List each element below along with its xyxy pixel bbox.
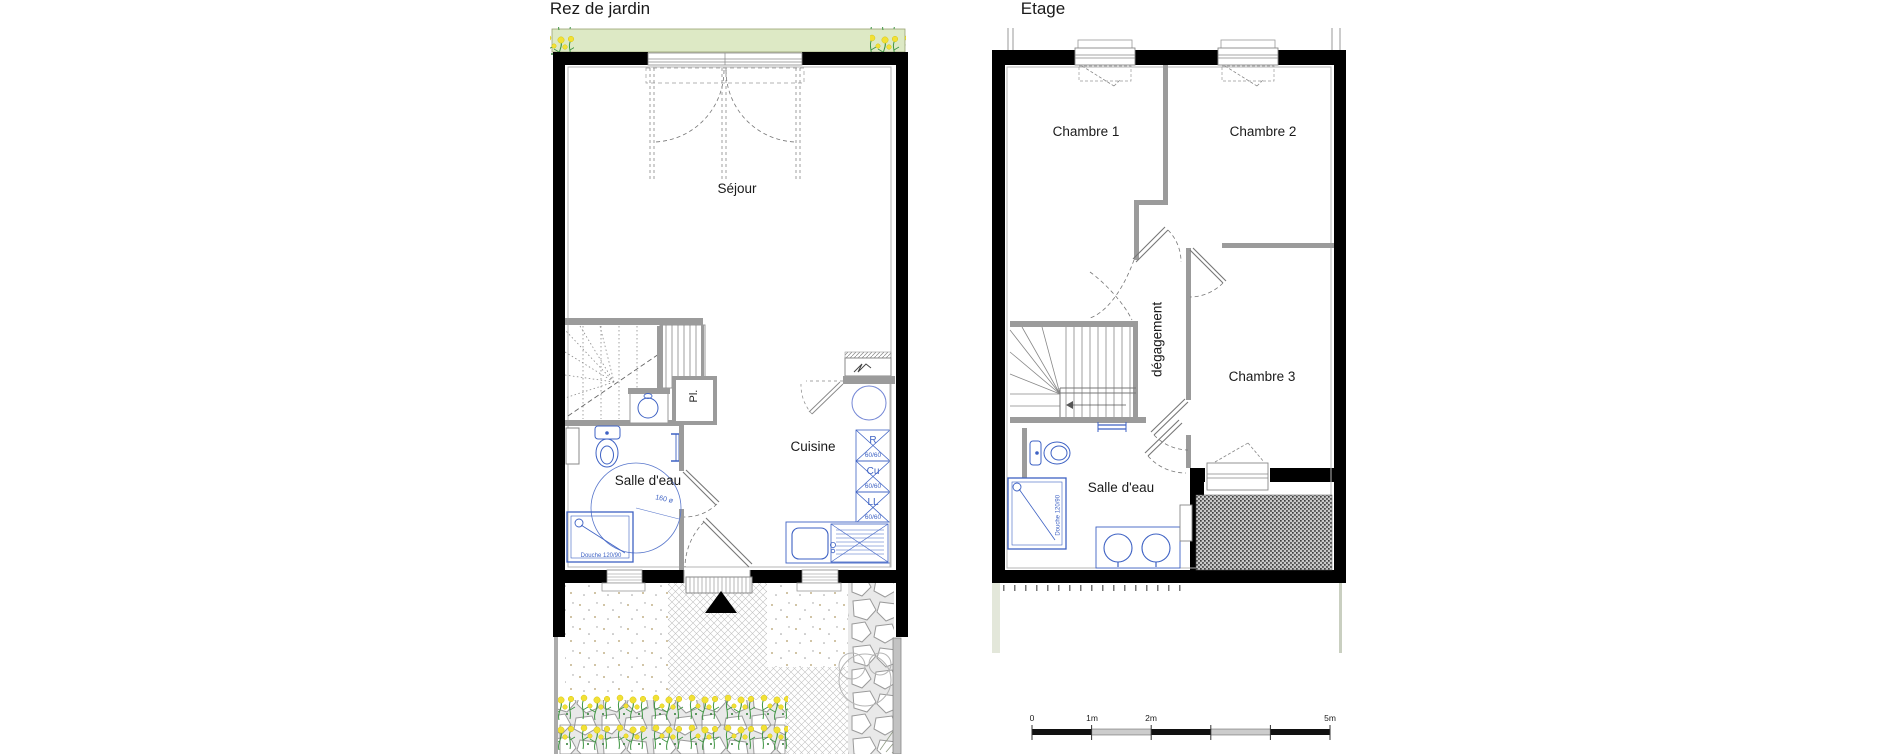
fixed-glazing [1180,505,1192,541]
window-chambre2 [1218,40,1278,86]
hand-basin [628,388,670,423]
window-chambre1 [1075,40,1135,86]
water-heater [801,376,895,420]
scale-label-2m: 2m [1141,714,1161,723]
plan-title-etage: Etage [953,0,1133,19]
doormat [686,577,752,593]
staircase [1010,327,1136,432]
room-label-chambre3: Chambre 3 [1202,370,1322,385]
radiator-icon [1098,422,1126,432]
french-door [646,53,804,180]
toilet-fixture [1030,441,1070,465]
bottom-window [797,570,841,591]
appliance-label-cooker: Cu [856,466,890,477]
note-shower-etage: Douche 120/90 [1056,486,1063,544]
toilet-fixture [595,426,620,467]
plan-etage [992,28,1346,653]
fence-right [893,638,901,754]
ground-sliver [992,583,1000,653]
window-chambre3 [1207,443,1268,490]
room-label-degagement: dégagement [1151,279,1166,399]
note-shower-rdj: Douche 120/90 [572,553,630,560]
appliance-size: 60/60 [856,483,890,490]
appliance-size: 60/60 [856,514,890,521]
party-wall-lines [1008,28,1340,50]
electrical-panel [845,352,891,376]
room-label-placard: Pl. [688,382,700,410]
room-label-chambre1: Chambre 1 [1026,125,1146,140]
scale-bar [1032,725,1330,740]
room-label-salle-eau-etage: Salle d'eau [1061,481,1181,496]
roof-terrace-hatch [1196,495,1332,570]
room-label-sejour: Séjour [687,182,787,197]
bottom-window [602,570,645,591]
double-basin [1096,527,1180,568]
scale-label-0: 0 [1026,714,1038,723]
appliance-label-washer: LL [856,497,890,508]
flower-bed [558,694,788,754]
entry-door [684,518,752,583]
inner-wall-line [568,67,891,567]
bathroom-partition [679,423,719,570]
scale-label-1m: 1m [1082,714,1102,723]
stone-path [848,583,894,754]
scale-label-5m: 5m [1320,714,1340,723]
room-label-chambre2: Chambre 2 [1203,125,1323,140]
appliance-size: 60/60 [856,452,890,459]
plan-title-rdj: Rez de jardin [480,0,720,19]
appliance-label-fridge: R [856,435,890,446]
room-label-cuisine: Cuisine [763,440,863,455]
understair-niche [566,428,579,464]
kitchen-sink [786,522,890,563]
fence-left [554,637,558,754]
room-label-salle-eau-rdj: Salle d'eau [588,474,708,489]
ground-sliver [1339,583,1342,653]
floorplan-page: Rez de jardin Etage Séjour Cuisine Salle… [0,0,1900,754]
floorplan-linework [0,0,1900,754]
plan-rez-de-jardin [550,27,908,754]
